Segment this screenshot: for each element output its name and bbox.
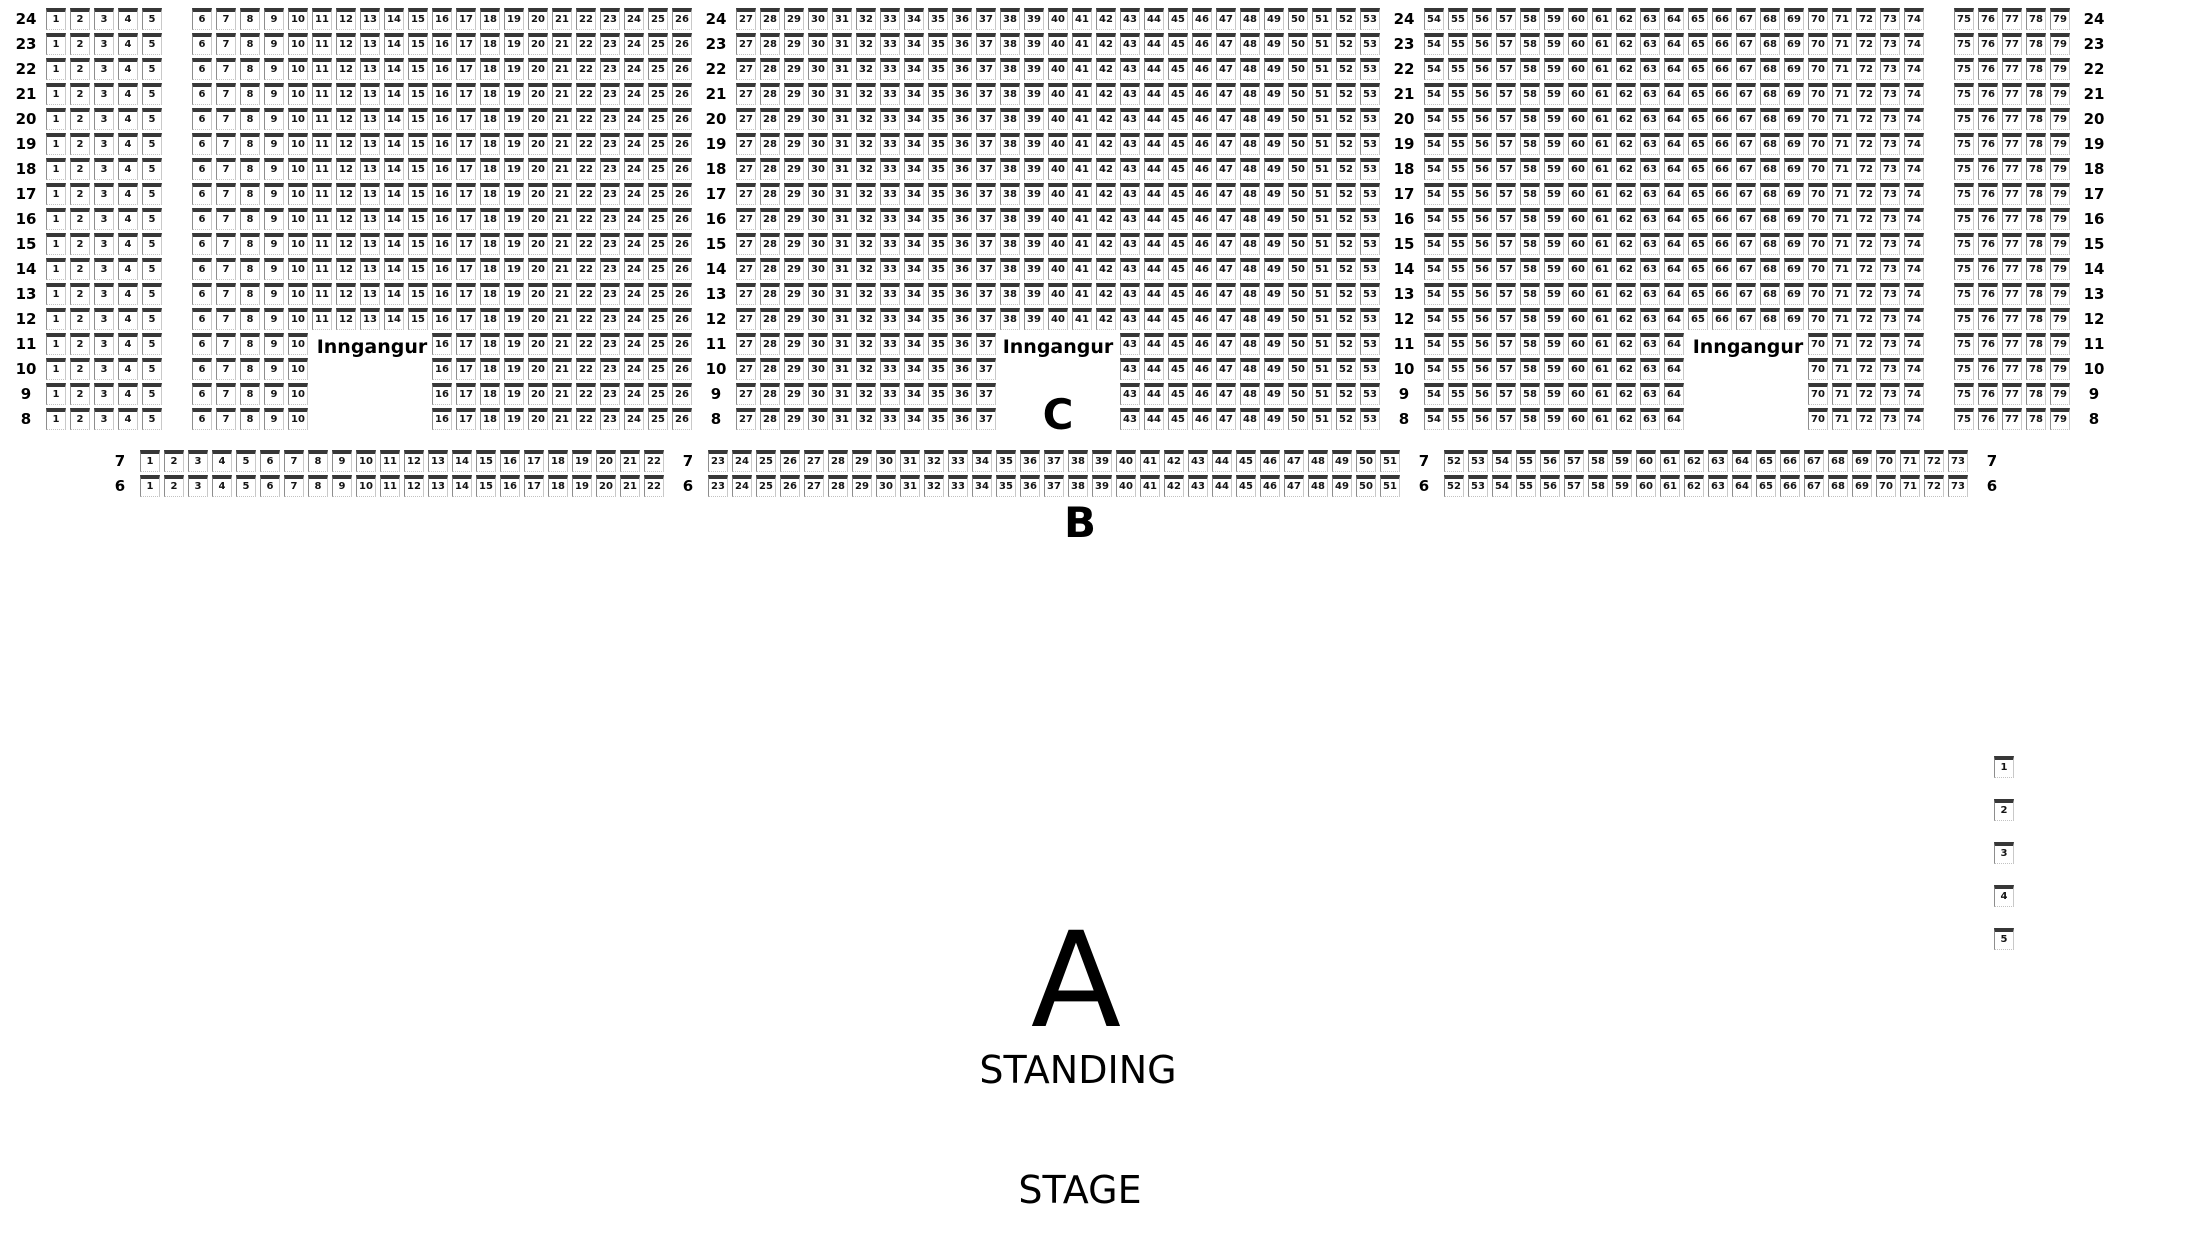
- seat[interactable]: 32: [856, 333, 876, 355]
- seat[interactable]: 18: [548, 475, 568, 497]
- seat[interactable]: 13: [360, 133, 380, 155]
- seat[interactable]: 10: [288, 208, 308, 230]
- seat[interactable]: 22: [576, 8, 596, 30]
- seat[interactable]: 36: [952, 33, 972, 55]
- seat[interactable]: 60: [1568, 208, 1588, 230]
- seat[interactable]: 32: [856, 83, 876, 105]
- seat[interactable]: 53: [1360, 258, 1380, 280]
- seat[interactable]: 43: [1120, 208, 1140, 230]
- seat[interactable]: 67: [1736, 233, 1756, 255]
- seat[interactable]: 23: [600, 358, 620, 380]
- seat[interactable]: 56: [1472, 408, 1492, 430]
- seat[interactable]: 33: [880, 208, 900, 230]
- seat[interactable]: 59: [1544, 283, 1564, 305]
- seat[interactable]: 64: [1664, 58, 1684, 80]
- seat[interactable]: 18: [480, 258, 500, 280]
- seat[interactable]: 8: [240, 358, 260, 380]
- seat[interactable]: 37: [976, 258, 996, 280]
- seat[interactable]: 45: [1168, 208, 1188, 230]
- seat[interactable]: 65: [1688, 83, 1708, 105]
- seat[interactable]: 6: [192, 358, 212, 380]
- seat[interactable]: 54: [1424, 83, 1444, 105]
- seat[interactable]: 23: [600, 108, 620, 130]
- seat[interactable]: 16: [432, 33, 452, 55]
- seat[interactable]: 12: [336, 133, 356, 155]
- seat[interactable]: 52: [1336, 83, 1356, 105]
- seat[interactable]: 74: [1904, 333, 1924, 355]
- seat[interactable]: 30: [808, 8, 828, 30]
- seat[interactable]: 58: [1520, 58, 1540, 80]
- seat[interactable]: 52: [1336, 333, 1356, 355]
- seat[interactable]: 6: [192, 83, 212, 105]
- seat[interactable]: 52: [1336, 233, 1356, 255]
- seat[interactable]: 44: [1144, 33, 1164, 55]
- seat[interactable]: 59: [1544, 8, 1564, 30]
- seat[interactable]: 25: [648, 58, 668, 80]
- seat[interactable]: 44: [1144, 308, 1164, 330]
- seat[interactable]: 45: [1168, 33, 1188, 55]
- seat[interactable]: 59: [1544, 83, 1564, 105]
- seat[interactable]: 60: [1568, 283, 1588, 305]
- seat[interactable]: 33: [880, 58, 900, 80]
- seat[interactable]: 2: [70, 333, 90, 355]
- seat[interactable]: 7: [216, 358, 236, 380]
- seat[interactable]: 22: [644, 475, 664, 497]
- seat[interactable]: 3: [94, 108, 114, 130]
- seat[interactable]: 52: [1336, 358, 1356, 380]
- seat[interactable]: 14: [384, 8, 404, 30]
- seat[interactable]: 14: [384, 133, 404, 155]
- seat[interactable]: 21: [552, 8, 572, 30]
- seat[interactable]: 35: [928, 8, 948, 30]
- seat[interactable]: 79: [2050, 408, 2070, 430]
- seat[interactable]: 2: [70, 258, 90, 280]
- seat[interactable]: 72: [1924, 450, 1944, 472]
- seat[interactable]: 43: [1120, 233, 1140, 255]
- seat[interactable]: 15: [408, 183, 428, 205]
- seat[interactable]: 73: [1880, 408, 1900, 430]
- seat[interactable]: 34: [904, 258, 924, 280]
- seat[interactable]: 55: [1516, 475, 1536, 497]
- seat[interactable]: 50: [1288, 383, 1308, 405]
- seat[interactable]: 60: [1568, 233, 1588, 255]
- seat[interactable]: 53: [1360, 83, 1380, 105]
- seat[interactable]: 69: [1784, 183, 1804, 205]
- seat[interactable]: 35: [928, 83, 948, 105]
- seat[interactable]: 1: [140, 450, 160, 472]
- seat[interactable]: 61: [1592, 108, 1612, 130]
- seat[interactable]: 62: [1616, 208, 1636, 230]
- seat[interactable]: 34: [904, 83, 924, 105]
- seat[interactable]: 52: [1336, 308, 1356, 330]
- seat[interactable]: 25: [648, 8, 668, 30]
- seat[interactable]: 14: [384, 183, 404, 205]
- seat[interactable]: 63: [1640, 358, 1660, 380]
- seat[interactable]: 56: [1540, 475, 1560, 497]
- seat[interactable]: 18: [548, 450, 568, 472]
- seat[interactable]: 33: [948, 475, 968, 497]
- seat[interactable]: 17: [524, 475, 544, 497]
- seat[interactable]: 59: [1544, 408, 1564, 430]
- seat[interactable]: 79: [2050, 383, 2070, 405]
- seat[interactable]: 72: [1856, 308, 1876, 330]
- seat[interactable]: 19: [572, 475, 592, 497]
- seat[interactable]: 21: [552, 233, 572, 255]
- seat[interactable]: 1: [46, 358, 66, 380]
- seat[interactable]: 63: [1640, 83, 1660, 105]
- seat[interactable]: 56: [1472, 283, 1492, 305]
- seat[interactable]: 16: [432, 133, 452, 155]
- seat[interactable]: 67: [1804, 450, 1824, 472]
- seat[interactable]: 53: [1360, 308, 1380, 330]
- seat[interactable]: 11: [312, 258, 332, 280]
- seat[interactable]: 1: [46, 283, 66, 305]
- seat[interactable]: 58: [1520, 333, 1540, 355]
- seat[interactable]: 30: [808, 233, 828, 255]
- seat[interactable]: 31: [832, 8, 852, 30]
- seat[interactable]: 20: [528, 83, 548, 105]
- seat[interactable]: 5: [142, 208, 162, 230]
- seat[interactable]: 65: [1688, 108, 1708, 130]
- seat[interactable]: 33: [880, 108, 900, 130]
- seat[interactable]: 56: [1472, 333, 1492, 355]
- seat[interactable]: 17: [456, 158, 476, 180]
- seat[interactable]: 44: [1144, 83, 1164, 105]
- seat[interactable]: 39: [1024, 183, 1044, 205]
- seat[interactable]: 20: [528, 258, 548, 280]
- seat[interactable]: 6: [192, 158, 212, 180]
- seat[interactable]: 55: [1448, 208, 1468, 230]
- seat[interactable]: 77: [2002, 183, 2022, 205]
- seat[interactable]: 54: [1424, 208, 1444, 230]
- seat[interactable]: 12: [336, 208, 356, 230]
- seat[interactable]: 16: [432, 158, 452, 180]
- seat[interactable]: 48: [1240, 233, 1260, 255]
- seat[interactable]: 64: [1664, 183, 1684, 205]
- seat[interactable]: 67: [1736, 158, 1756, 180]
- seat[interactable]: 5: [236, 475, 256, 497]
- seat[interactable]: 66: [1712, 158, 1732, 180]
- seat[interactable]: 12: [336, 183, 356, 205]
- seat[interactable]: 49: [1264, 333, 1284, 355]
- seat[interactable]: 28: [760, 183, 780, 205]
- seat[interactable]: 37: [976, 283, 996, 305]
- seat[interactable]: 77: [2002, 308, 2022, 330]
- seat[interactable]: 73: [1880, 158, 1900, 180]
- seat[interactable]: 36: [952, 308, 972, 330]
- seat[interactable]: 2: [70, 233, 90, 255]
- seat[interactable]: 54: [1424, 233, 1444, 255]
- seat[interactable]: 54: [1424, 33, 1444, 55]
- seat[interactable]: 5: [142, 358, 162, 380]
- seat[interactable]: 52: [1336, 183, 1356, 205]
- seat[interactable]: 2: [70, 408, 90, 430]
- seat[interactable]: 28: [760, 58, 780, 80]
- seat[interactable]: 53: [1468, 475, 1488, 497]
- seat[interactable]: 76: [1978, 208, 1998, 230]
- seat[interactable]: 75: [1954, 258, 1974, 280]
- seat[interactable]: 66: [1712, 108, 1732, 130]
- seat[interactable]: 41: [1072, 233, 1092, 255]
- seat[interactable]: 68: [1760, 233, 1780, 255]
- seat[interactable]: 59: [1612, 450, 1632, 472]
- seat[interactable]: 30: [808, 133, 828, 155]
- seat[interactable]: 55: [1448, 233, 1468, 255]
- seat[interactable]: 72: [1856, 158, 1876, 180]
- seat[interactable]: 12: [336, 283, 356, 305]
- seat[interactable]: 33: [880, 8, 900, 30]
- seat[interactable]: 79: [2050, 108, 2070, 130]
- seat[interactable]: 61: [1592, 408, 1612, 430]
- seat[interactable]: 15: [408, 308, 428, 330]
- seat[interactable]: 7: [216, 158, 236, 180]
- seat[interactable]: 49: [1264, 258, 1284, 280]
- seat[interactable]: 3: [94, 83, 114, 105]
- seat[interactable]: 10: [288, 308, 308, 330]
- seat[interactable]: 50: [1288, 333, 1308, 355]
- seat[interactable]: 3: [94, 233, 114, 255]
- seat[interactable]: 48: [1240, 283, 1260, 305]
- seat[interactable]: 11: [380, 450, 400, 472]
- seat[interactable]: 17: [456, 233, 476, 255]
- seat[interactable]: 35: [928, 133, 948, 155]
- seat[interactable]: 10: [288, 8, 308, 30]
- seat[interactable]: 70: [1808, 283, 1828, 305]
- seat[interactable]: 4: [118, 233, 138, 255]
- seat[interactable]: 39: [1024, 108, 1044, 130]
- seat[interactable]: 65: [1688, 233, 1708, 255]
- seat[interactable]: 70: [1808, 108, 1828, 130]
- seat[interactable]: 73: [1880, 358, 1900, 380]
- seat[interactable]: 18: [480, 333, 500, 355]
- seat[interactable]: 4: [212, 475, 232, 497]
- seat[interactable]: 65: [1688, 283, 1708, 305]
- seat[interactable]: 19: [504, 83, 524, 105]
- seat[interactable]: 38: [1000, 58, 1020, 80]
- seat[interactable]: 26: [672, 8, 692, 30]
- seat[interactable]: 1: [46, 183, 66, 205]
- seat[interactable]: 40: [1048, 133, 1068, 155]
- seat[interactable]: 17: [456, 183, 476, 205]
- seat[interactable]: 2: [70, 33, 90, 55]
- seat[interactable]: 34: [904, 208, 924, 230]
- seat[interactable]: 45: [1168, 333, 1188, 355]
- seat[interactable]: 25: [648, 383, 668, 405]
- seat[interactable]: 8: [308, 450, 328, 472]
- seat[interactable]: 75: [1954, 408, 1974, 430]
- seat[interactable]: 1: [46, 58, 66, 80]
- seat[interactable]: 10: [288, 183, 308, 205]
- seat[interactable]: 33: [880, 158, 900, 180]
- seat[interactable]: 67: [1736, 208, 1756, 230]
- seat[interactable]: 29: [784, 158, 804, 180]
- seat[interactable]: 63: [1640, 408, 1660, 430]
- seat[interactable]: 69: [1852, 450, 1872, 472]
- seat[interactable]: 62: [1616, 383, 1636, 405]
- seat[interactable]: 49: [1264, 108, 1284, 130]
- seat[interactable]: 51: [1312, 108, 1332, 130]
- seat[interactable]: 21: [552, 283, 572, 305]
- seat[interactable]: 77: [2002, 383, 2022, 405]
- seat[interactable]: 28: [760, 258, 780, 280]
- seat[interactable]: 23: [600, 408, 620, 430]
- seat[interactable]: 43: [1120, 83, 1140, 105]
- seat[interactable]: 45: [1236, 450, 1256, 472]
- seat[interactable]: 55: [1448, 308, 1468, 330]
- seat[interactable]: 57: [1496, 233, 1516, 255]
- seat[interactable]: 71: [1832, 383, 1852, 405]
- seat[interactable]: 48: [1240, 183, 1260, 205]
- seat[interactable]: 3: [1994, 842, 2014, 864]
- seat[interactable]: 45: [1168, 58, 1188, 80]
- seat[interactable]: 74: [1904, 233, 1924, 255]
- seat[interactable]: 48: [1240, 258, 1260, 280]
- seat[interactable]: 74: [1904, 33, 1924, 55]
- seat[interactable]: 78: [2026, 133, 2046, 155]
- seat[interactable]: 64: [1664, 108, 1684, 130]
- seat[interactable]: 63: [1640, 383, 1660, 405]
- seat[interactable]: 11: [312, 33, 332, 55]
- seat[interactable]: 36: [952, 83, 972, 105]
- seat[interactable]: 19: [504, 258, 524, 280]
- seat[interactable]: 19: [504, 158, 524, 180]
- seat[interactable]: 61: [1592, 358, 1612, 380]
- seat[interactable]: 50: [1288, 58, 1308, 80]
- seat[interactable]: 6: [260, 450, 280, 472]
- seat[interactable]: 23: [600, 8, 620, 30]
- seat[interactable]: 66: [1712, 58, 1732, 80]
- seat[interactable]: 20: [528, 183, 548, 205]
- seat[interactable]: 14: [384, 258, 404, 280]
- seat[interactable]: 34: [904, 233, 924, 255]
- seat[interactable]: 2: [70, 308, 90, 330]
- seat[interactable]: 61: [1592, 133, 1612, 155]
- seat[interactable]: 67: [1736, 8, 1756, 30]
- seat[interactable]: 24: [624, 33, 644, 55]
- seat[interactable]: 69: [1784, 133, 1804, 155]
- seat[interactable]: 64: [1664, 383, 1684, 405]
- seat[interactable]: 5: [142, 158, 162, 180]
- seat[interactable]: 19: [504, 283, 524, 305]
- seat[interactable]: 35: [928, 333, 948, 355]
- seat[interactable]: 71: [1832, 33, 1852, 55]
- seat[interactable]: 64: [1732, 475, 1752, 497]
- seat[interactable]: 1: [46, 233, 66, 255]
- seat[interactable]: 19: [504, 33, 524, 55]
- seat[interactable]: 45: [1236, 475, 1256, 497]
- seat[interactable]: 45: [1168, 8, 1188, 30]
- seat[interactable]: 47: [1216, 108, 1236, 130]
- seat[interactable]: 42: [1096, 258, 1116, 280]
- seat[interactable]: 63: [1640, 108, 1660, 130]
- seat[interactable]: 57: [1496, 333, 1516, 355]
- seat[interactable]: 63: [1640, 133, 1660, 155]
- seat[interactable]: 29: [784, 258, 804, 280]
- seat[interactable]: 2: [70, 283, 90, 305]
- seat[interactable]: 5: [142, 83, 162, 105]
- seat[interactable]: 23: [600, 283, 620, 305]
- seat[interactable]: 4: [118, 258, 138, 280]
- seat[interactable]: 28: [760, 208, 780, 230]
- seat[interactable]: 19: [504, 183, 524, 205]
- seat[interactable]: 42: [1096, 33, 1116, 55]
- seat[interactable]: 17: [456, 133, 476, 155]
- seat[interactable]: 43: [1120, 258, 1140, 280]
- seat[interactable]: 35: [996, 450, 1016, 472]
- seat[interactable]: 70: [1808, 8, 1828, 30]
- seat[interactable]: 19: [504, 58, 524, 80]
- seat[interactable]: 77: [2002, 8, 2022, 30]
- seat[interactable]: 11: [312, 83, 332, 105]
- seat[interactable]: 63: [1640, 333, 1660, 355]
- seat[interactable]: 28: [760, 308, 780, 330]
- seat[interactable]: 47: [1284, 475, 1304, 497]
- seat[interactable]: 59: [1544, 33, 1564, 55]
- seat[interactable]: 4: [118, 183, 138, 205]
- seat[interactable]: 54: [1424, 358, 1444, 380]
- seat[interactable]: 56: [1540, 450, 1560, 472]
- seat[interactable]: 68: [1760, 133, 1780, 155]
- seat[interactable]: 43: [1120, 158, 1140, 180]
- seat[interactable]: 60: [1568, 33, 1588, 55]
- seat[interactable]: 74: [1904, 108, 1924, 130]
- seat[interactable]: 6: [192, 258, 212, 280]
- seat[interactable]: 36: [1020, 475, 1040, 497]
- seat[interactable]: 51: [1312, 408, 1332, 430]
- seat[interactable]: 77: [2002, 158, 2022, 180]
- seat[interactable]: 61: [1592, 83, 1612, 105]
- seat[interactable]: 73: [1880, 108, 1900, 130]
- seat[interactable]: 43: [1120, 33, 1140, 55]
- seat[interactable]: 33: [880, 333, 900, 355]
- seat[interactable]: 24: [624, 283, 644, 305]
- seat[interactable]: 3: [94, 358, 114, 380]
- seat[interactable]: 35: [928, 158, 948, 180]
- seat[interactable]: 76: [1978, 333, 1998, 355]
- seat[interactable]: 5: [142, 8, 162, 30]
- seat[interactable]: 51: [1312, 233, 1332, 255]
- seat[interactable]: 69: [1784, 158, 1804, 180]
- seat[interactable]: 30: [808, 183, 828, 205]
- seat[interactable]: 8: [240, 183, 260, 205]
- seat[interactable]: 57: [1496, 108, 1516, 130]
- seat[interactable]: 74: [1904, 83, 1924, 105]
- seat[interactable]: 50: [1356, 450, 1376, 472]
- seat[interactable]: 42: [1096, 83, 1116, 105]
- seat[interactable]: 69: [1784, 8, 1804, 30]
- seat[interactable]: 79: [2050, 283, 2070, 305]
- seat[interactable]: 13: [360, 233, 380, 255]
- seat[interactable]: 67: [1736, 258, 1756, 280]
- seat[interactable]: 46: [1192, 83, 1212, 105]
- seat[interactable]: 29: [784, 308, 804, 330]
- seat[interactable]: 20: [528, 383, 548, 405]
- seat[interactable]: 74: [1904, 308, 1924, 330]
- seat[interactable]: 44: [1144, 183, 1164, 205]
- seat[interactable]: 72: [1856, 358, 1876, 380]
- seat[interactable]: 43: [1120, 283, 1140, 305]
- seat[interactable]: 51: [1312, 33, 1332, 55]
- seat[interactable]: 62: [1616, 233, 1636, 255]
- seat[interactable]: 76: [1978, 183, 1998, 205]
- seat[interactable]: 10: [356, 475, 376, 497]
- seat[interactable]: 18: [480, 158, 500, 180]
- seat[interactable]: 4: [118, 58, 138, 80]
- seat[interactable]: 45: [1168, 133, 1188, 155]
- seat[interactable]: 76: [1978, 308, 1998, 330]
- seat[interactable]: 55: [1448, 58, 1468, 80]
- seat[interactable]: 42: [1164, 475, 1184, 497]
